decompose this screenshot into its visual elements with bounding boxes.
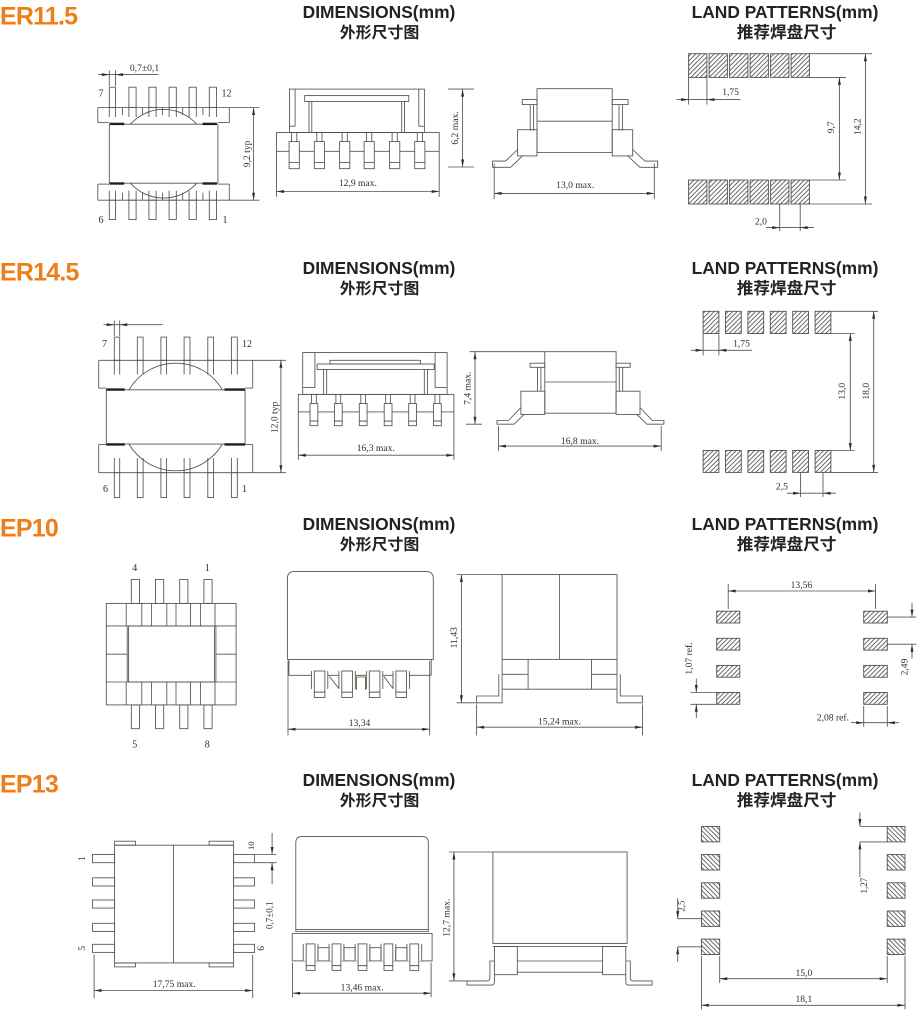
svg-text:2,5: 2,5	[776, 481, 788, 492]
svg-text:18,1: 18,1	[796, 994, 813, 1005]
svg-text:18,0: 18,0	[861, 383, 872, 400]
svg-text:6,2 max.: 6,2 max.	[450, 111, 461, 144]
svg-text:17,75 max.: 17,75 max.	[153, 979, 196, 990]
svg-text:4: 4	[132, 563, 137, 574]
svg-text:12,0 typ: 12,0 typ	[269, 401, 280, 433]
svg-text:1,75: 1,75	[733, 338, 750, 349]
svg-text:1: 1	[242, 484, 247, 495]
svg-text:0,7±0,1: 0,7±0,1	[265, 902, 275, 929]
svg-text:16,8 max.: 16,8 max.	[561, 436, 599, 447]
svg-text:13,46 max.: 13,46 max.	[341, 983, 384, 994]
svg-text:DIMENSIONS(mm): DIMENSIONS(mm)	[303, 770, 456, 790]
svg-text:8: 8	[205, 740, 210, 751]
svg-text:10: 10	[246, 841, 256, 850]
svg-text:2,0: 2,0	[755, 217, 767, 228]
svg-text:EP13: EP13	[0, 771, 58, 799]
svg-text:15,0: 15,0	[796, 968, 813, 979]
svg-text:14,2: 14,2	[852, 118, 863, 135]
svg-text:13,0: 13,0	[837, 383, 848, 400]
svg-text:ER14.5: ER14.5	[0, 259, 79, 287]
svg-text:DIMENSIONS(mm): DIMENSIONS(mm)	[303, 514, 456, 534]
svg-text:1,07 ref.: 1,07 ref.	[684, 642, 695, 674]
svg-text:1: 1	[205, 563, 210, 574]
svg-text:EP10: EP10	[0, 515, 58, 543]
svg-text:7: 7	[99, 88, 104, 99]
svg-text:2,5: 2,5	[677, 900, 687, 912]
svg-text:6: 6	[103, 484, 108, 495]
svg-text:DIMENSIONS(mm): DIMENSIONS(mm)	[303, 258, 456, 278]
svg-text:11,43: 11,43	[449, 627, 460, 648]
svg-text:13,34: 13,34	[349, 718, 371, 729]
svg-text:1: 1	[223, 215, 228, 226]
svg-text:9,7: 9,7	[826, 121, 837, 133]
svg-text:1: 1	[77, 856, 88, 861]
svg-text:12,9 max.: 12,9 max.	[339, 178, 377, 189]
svg-text:2,08 ref.: 2,08 ref.	[817, 712, 849, 723]
svg-text:ER11.5: ER11.5	[0, 3, 78, 31]
svg-text:LAND PATTERNS(mm): LAND PATTERNS(mm)	[692, 2, 879, 22]
svg-text:16,3 max.: 16,3 max.	[357, 443, 395, 454]
svg-text:1,75: 1,75	[722, 87, 739, 98]
svg-text:13,0 max.: 13,0 max.	[556, 180, 594, 191]
svg-text:7,4 max.: 7,4 max.	[463, 372, 474, 405]
svg-text:LAND PATTERNS(mm): LAND PATTERNS(mm)	[692, 514, 879, 534]
svg-text:6: 6	[256, 946, 267, 951]
svg-text:LAND PATTERNS(mm): LAND PATTERNS(mm)	[692, 770, 879, 790]
svg-text:9,2 typ: 9,2 typ	[242, 140, 253, 167]
svg-text:12: 12	[222, 88, 232, 99]
svg-text:15,24 max.: 15,24 max.	[538, 717, 581, 728]
svg-text:13,56: 13,56	[791, 580, 813, 591]
svg-text:1,27: 1,27	[859, 877, 869, 893]
svg-text:12: 12	[242, 339, 252, 350]
svg-text:2,49: 2,49	[899, 658, 910, 675]
svg-text:7: 7	[102, 339, 107, 350]
svg-text:LAND PATTERNS(mm): LAND PATTERNS(mm)	[692, 258, 879, 278]
svg-text:5: 5	[77, 946, 88, 951]
svg-text:6: 6	[99, 215, 104, 226]
svg-text:DIMENSIONS(mm): DIMENSIONS(mm)	[303, 2, 456, 22]
svg-text:5: 5	[132, 740, 137, 751]
svg-text:12,7 max.: 12,7 max.	[441, 899, 452, 937]
svg-text:0,7±0,1: 0,7±0,1	[130, 63, 159, 74]
